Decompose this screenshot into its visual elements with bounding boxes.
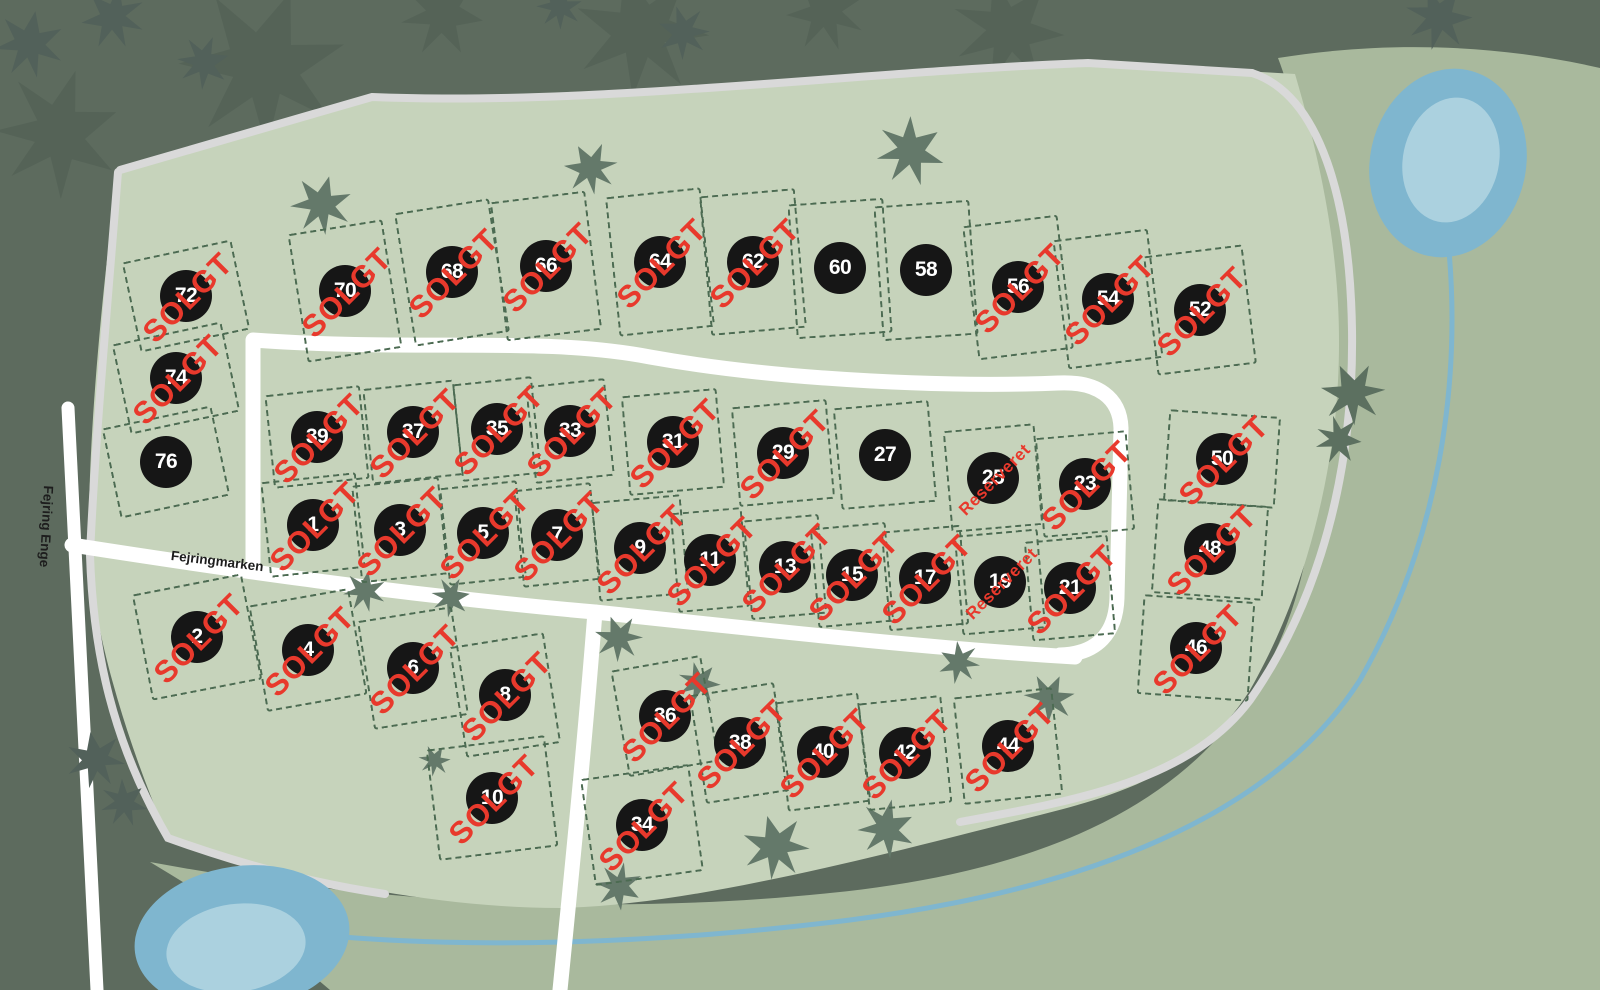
site-plan-map: 72SOLGT74SOLGT7670SOLGT68SOLGT66SOLGT64S… bbox=[0, 0, 1600, 990]
plot-number-badge: 58 bbox=[900, 244, 952, 296]
plot-number-badge: 27 bbox=[859, 429, 911, 481]
plot-number-badge: 76 bbox=[140, 436, 192, 488]
plot-number-badge: 60 bbox=[814, 242, 866, 294]
plots-layer: 72SOLGT74SOLGT7670SOLGT68SOLGT66SOLGT64S… bbox=[0, 0, 1600, 990]
